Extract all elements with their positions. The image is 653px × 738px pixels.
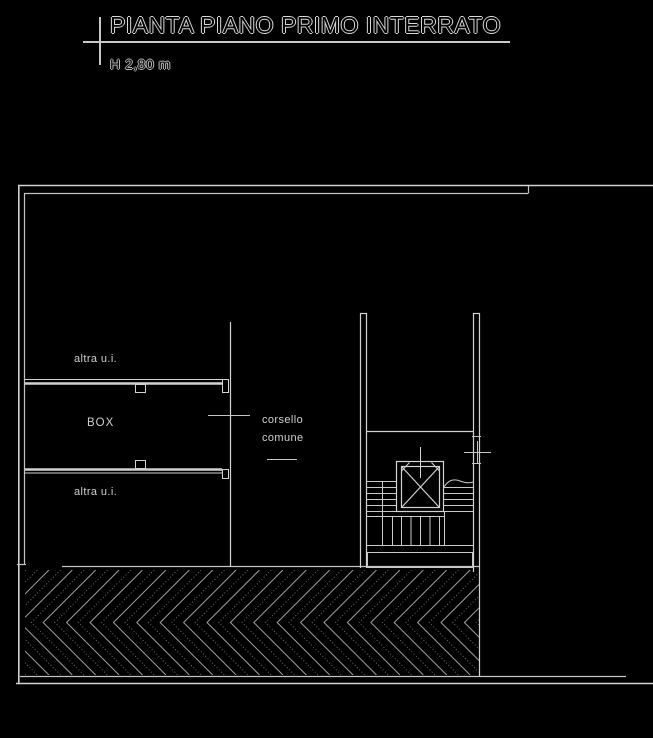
- room-label-altra-ui-bottom: altra u.i.: [74, 486, 117, 498]
- outer-walls-inner: [17, 186, 626, 677]
- box-room-walls: [25, 322, 231, 566]
- stair-treads: [367, 480, 473, 568]
- drawing-canvas: PIANTA PIANO PRIMO INTERRATO H 2,80 m: [0, 0, 653, 738]
- ramp-hatch: [0, 570, 529, 675]
- room-label-corsello-comune: corsello comune: [262, 412, 304, 447]
- corsello-label-line2: comune: [262, 430, 304, 448]
- room-label-box: BOX: [87, 417, 114, 429]
- corsello-label-line1: corsello: [262, 412, 304, 430]
- outer-walls: [16, 185, 653, 684]
- elevator-icon: [397, 447, 444, 512]
- box-door-markers: [136, 385, 146, 469]
- stairwell-walls: [360, 313, 480, 676]
- benchmark-crosshair-icon: [464, 437, 491, 465]
- room-label-altra-ui-top: altra u.i.: [74, 353, 117, 365]
- floor-plan: [0, 0, 653, 738]
